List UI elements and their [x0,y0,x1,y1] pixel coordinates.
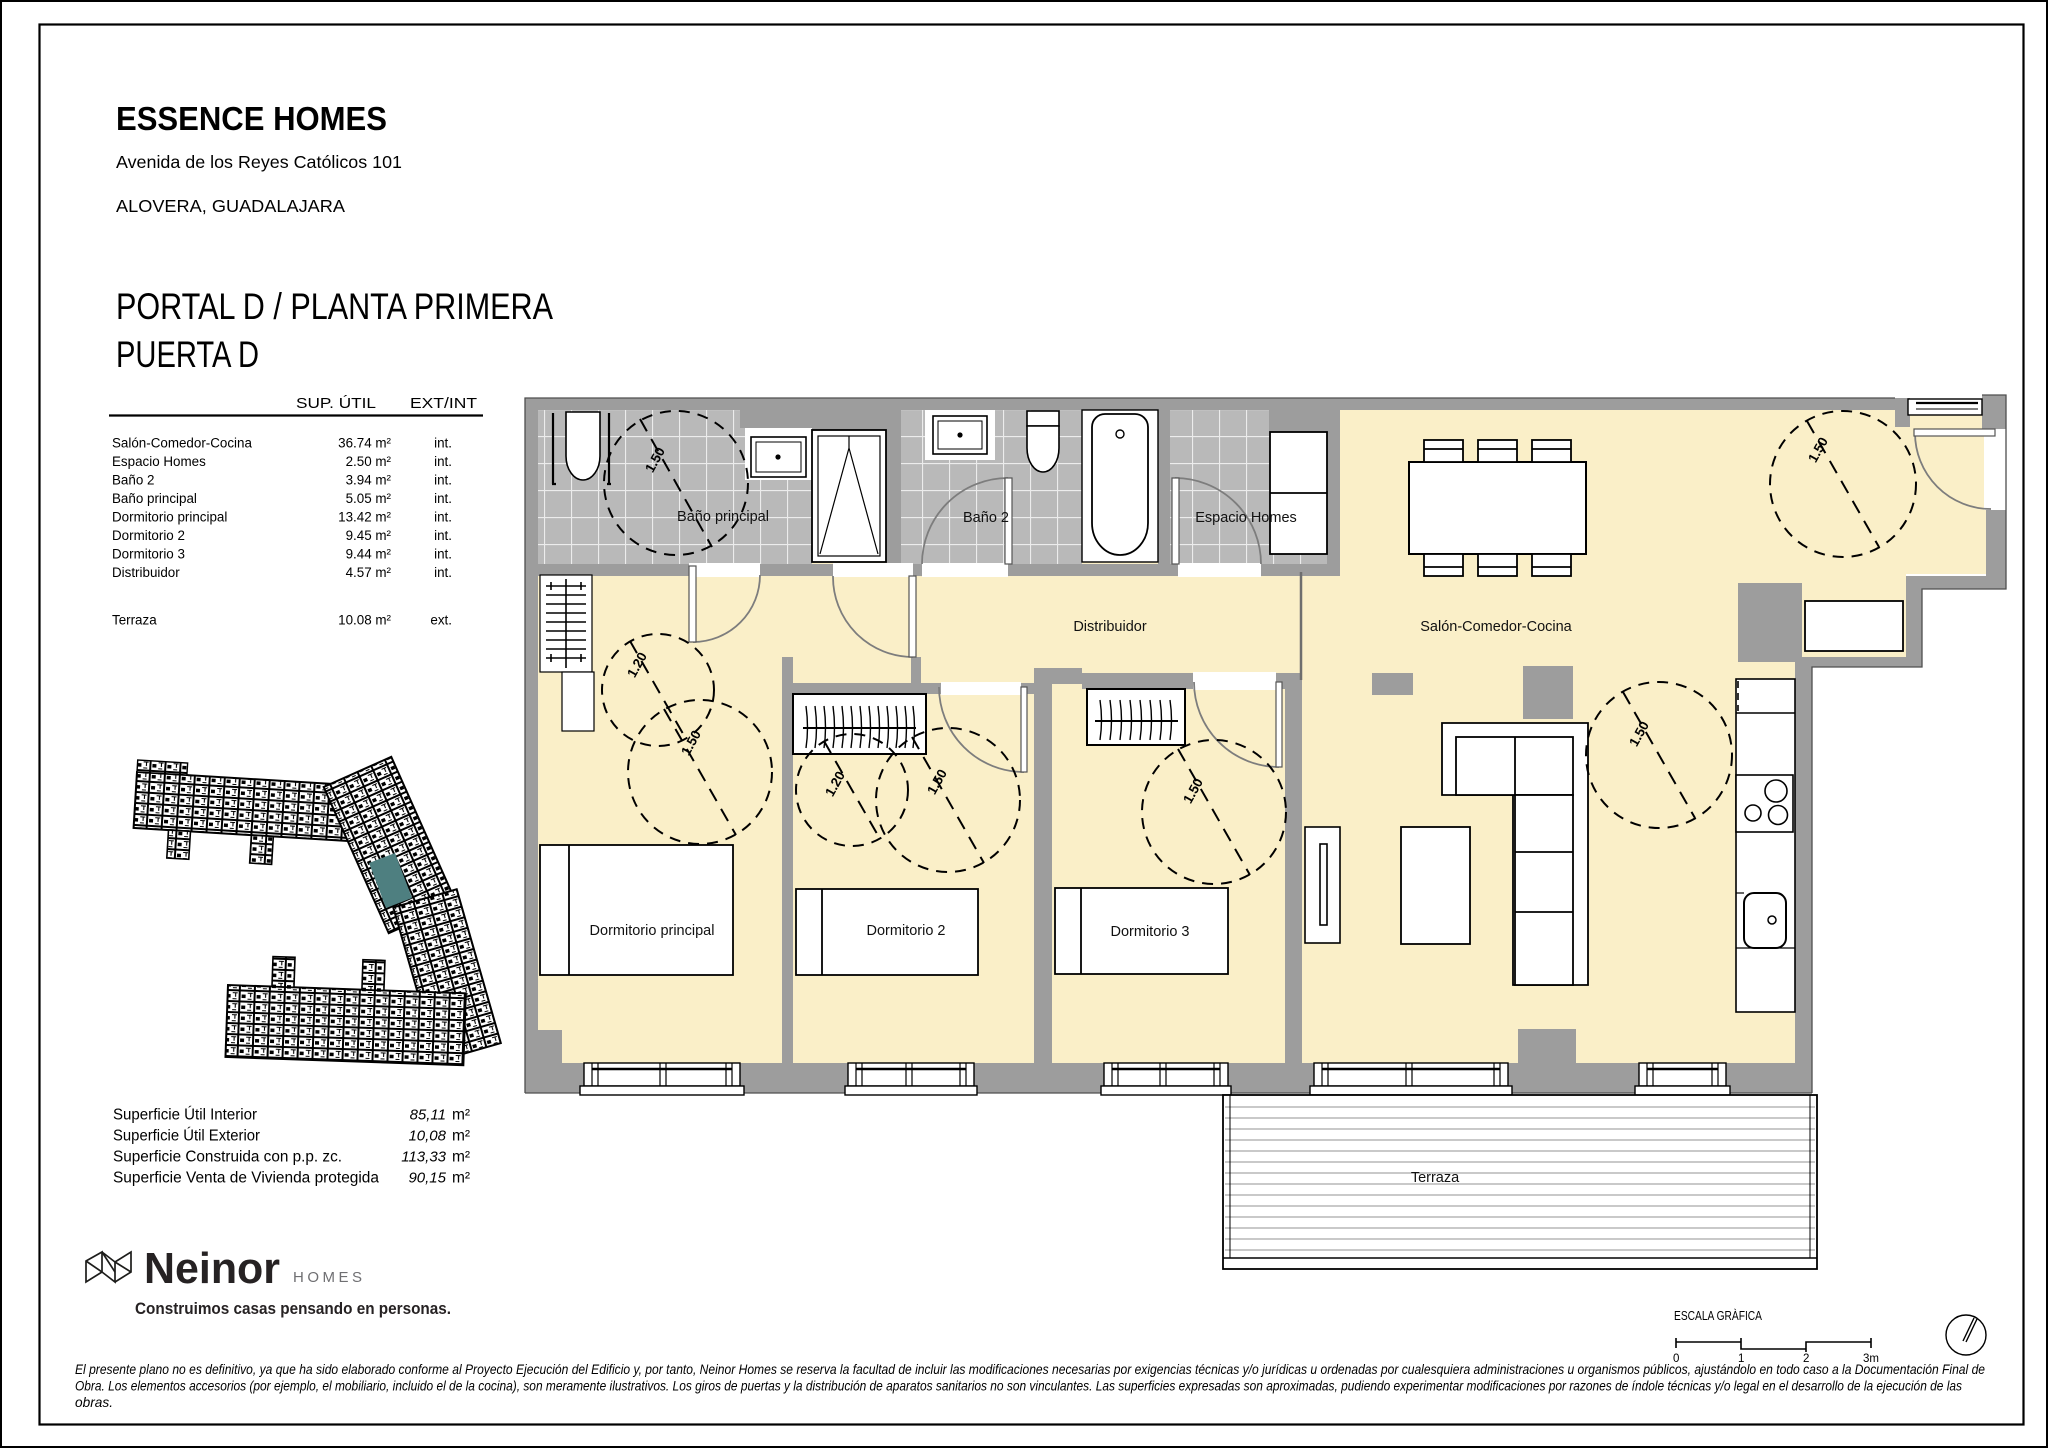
svg-text:Dormitorio 2: Dormitorio 2 [112,528,185,543]
svg-text:36.74 m²: 36.74 m² [338,436,391,451]
svg-text:Dormitorio 2: Dormitorio 2 [867,923,946,939]
svg-text:Terraza: Terraza [112,613,157,628]
svg-text:m²: m² [452,1128,470,1145]
svg-text:Superficie Útil Interior: Superficie Útil Interior [113,1107,257,1124]
svg-text:Salón-Comedor-Cocina: Salón-Comedor-Cocina [112,436,252,451]
svg-text:Salón-Comedor-Cocina: Salón-Comedor-Cocina [1420,619,1572,635]
svg-text:PORTAL D / PLANTA PRIMERA: PORTAL D / PLANTA PRIMERA [116,286,553,327]
svg-text:Superficie Útil Exterior: Superficie Útil Exterior [113,1128,260,1145]
svg-text:Dormitorio 3: Dormitorio 3 [112,546,185,561]
svg-text:int.: int. [434,473,452,488]
svg-text:Baño 2: Baño 2 [112,473,154,488]
svg-text:m²: m² [452,1107,470,1124]
svg-text:Avenida de los Reyes Católicos: Avenida de los Reyes Católicos 101 [116,152,402,172]
svg-text:Distribuidor: Distribuidor [112,565,180,580]
svg-text:5.05 m²: 5.05 m² [346,491,392,506]
svg-text:ESCALA GRÀFICA: ESCALA GRÀFICA [1674,1308,1762,1323]
svg-text:ESSENCE HOMES: ESSENCE HOMES [116,100,387,137]
svg-text:int.: int. [434,491,452,506]
svg-text:PUERTA D: PUERTA D [116,334,259,375]
svg-text:3.94 m²: 3.94 m² [346,473,392,488]
svg-text:int.: int. [434,436,452,451]
svg-text:0: 0 [1673,1353,1679,1365]
svg-text:int.: int. [434,454,452,469]
svg-text:Espacio Homes: Espacio Homes [112,454,206,469]
svg-text:13.42 m²: 13.42 m² [338,510,391,525]
svg-text:10.08 m²: 10.08 m² [338,613,391,628]
svg-text:obras.: obras. [75,1395,113,1410]
svg-text:Obra. Los elementos accesorios: Obra. Los elementos accesorios (por ejem… [75,1379,1962,1394]
svg-text:HOMES: HOMES [293,1269,362,1286]
svg-text:Baño 2: Baño 2 [963,510,1009,526]
svg-text:ALOVERA, GUADALAJARA: ALOVERA, GUADALAJARA [116,196,345,216]
svg-text:EXT/INT: EXT/INT [410,396,477,412]
svg-text:int.: int. [434,528,452,543]
svg-text:9.45 m²: 9.45 m² [346,528,392,543]
svg-text:Neinor: Neinor [144,1244,280,1293]
svg-text:10,08: 10,08 [408,1128,446,1145]
svg-text:4.57 m²: 4.57 m² [346,565,392,580]
svg-text:m²: m² [452,1170,470,1187]
svg-text:3m: 3m [1863,1353,1879,1365]
svg-text:int.: int. [434,510,452,525]
svg-text:Construimos casas pensando en: Construimos casas pensando en personas. [135,1299,451,1318]
svg-text:int.: int. [434,565,452,580]
svg-text:Dormitorio 3: Dormitorio 3 [1111,924,1190,940]
svg-text:9.44 m²: 9.44 m² [346,546,392,561]
svg-text:Dormitorio principal: Dormitorio principal [590,923,715,939]
svg-text:Terraza: Terraza [1411,1170,1460,1186]
svg-text:int.: int. [434,546,452,561]
svg-text:m²: m² [452,1149,470,1166]
svg-text:SUP. ÚTIL: SUP. ÚTIL [296,395,376,412]
svg-text:Baño principal: Baño principal [112,491,197,506]
svg-text:Baño principal: Baño principal [677,509,769,525]
svg-text:Superficie Construida con p.p.: Superficie Construida con p.p. zc. [113,1149,342,1166]
svg-text:Espacio Homes: Espacio Homes [1195,510,1297,526]
svg-text:El presente plano no es defini: El presente plano no es definitivo, ya q… [75,1362,1985,1377]
svg-text:113,33: 113,33 [401,1149,446,1166]
svg-text:ext.: ext. [430,613,452,628]
svg-text:2: 2 [1803,1353,1809,1365]
svg-text:2.50 m²: 2.50 m² [346,454,392,469]
svg-text:Superficie Venta de Vivienda p: Superficie Venta de Vivienda protegida [113,1170,379,1187]
svg-text:90,15: 90,15 [408,1170,446,1187]
svg-text:Distribuidor: Distribuidor [1073,619,1146,635]
svg-text:85,11: 85,11 [410,1107,446,1124]
svg-text:1: 1 [1738,1353,1744,1365]
svg-text:Dormitorio principal: Dormitorio principal [112,510,227,525]
